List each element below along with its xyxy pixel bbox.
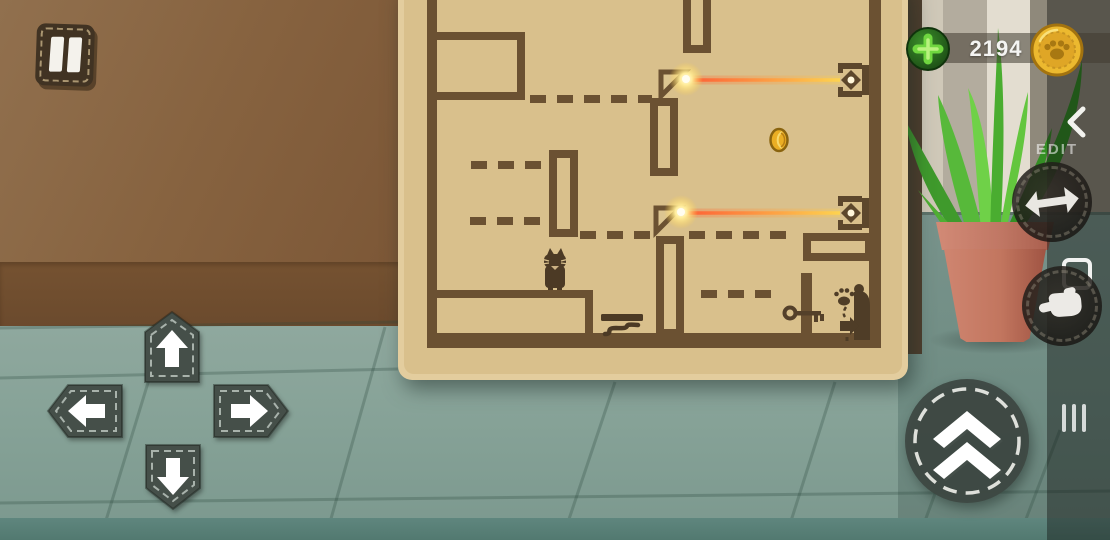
pause-icon <box>67 37 82 72</box>
laser-glow-core <box>682 75 690 83</box>
hand-drag-icon <box>1037 287 1087 325</box>
coin-sprite <box>771 129 788 151</box>
laser-receiver-icon <box>838 63 869 97</box>
dpad-down-button[interactable] <box>144 443 202 511</box>
pause-icon <box>49 37 64 72</box>
handle-bar <box>1062 404 1066 432</box>
game-screen: 2194 EDIT <box>0 0 1110 540</box>
board-wall <box>801 273 812 337</box>
dpad-up-button[interactable] <box>143 310 201 384</box>
handle-bar <box>1082 404 1086 432</box>
laser-glow-core <box>677 208 685 216</box>
pause-button[interactable] <box>35 23 95 87</box>
dpad-right-button[interactable] <box>212 383 290 439</box>
move-arrows-icon <box>1024 185 1080 219</box>
laser-receiver-icon <box>838 196 869 230</box>
chevron-left-icon[interactable] <box>1062 105 1090 139</box>
paw-coin-icon <box>1030 23 1084 77</box>
hand-drag-tool-button[interactable] <box>1022 266 1102 346</box>
add-coins-button[interactable] <box>905 26 951 72</box>
board-wall <box>427 0 437 348</box>
move-tool-button[interactable] <box>1012 162 1092 242</box>
drawer-handle-icon[interactable] <box>1062 404 1086 432</box>
jump-button[interactable] <box>903 377 1031 505</box>
board-wall <box>427 333 881 348</box>
handle-bar <box>1072 404 1076 432</box>
board-wall <box>869 0 881 348</box>
edit-panel-label: EDIT <box>1026 141 1088 158</box>
dpad-left-button[interactable] <box>46 383 124 439</box>
